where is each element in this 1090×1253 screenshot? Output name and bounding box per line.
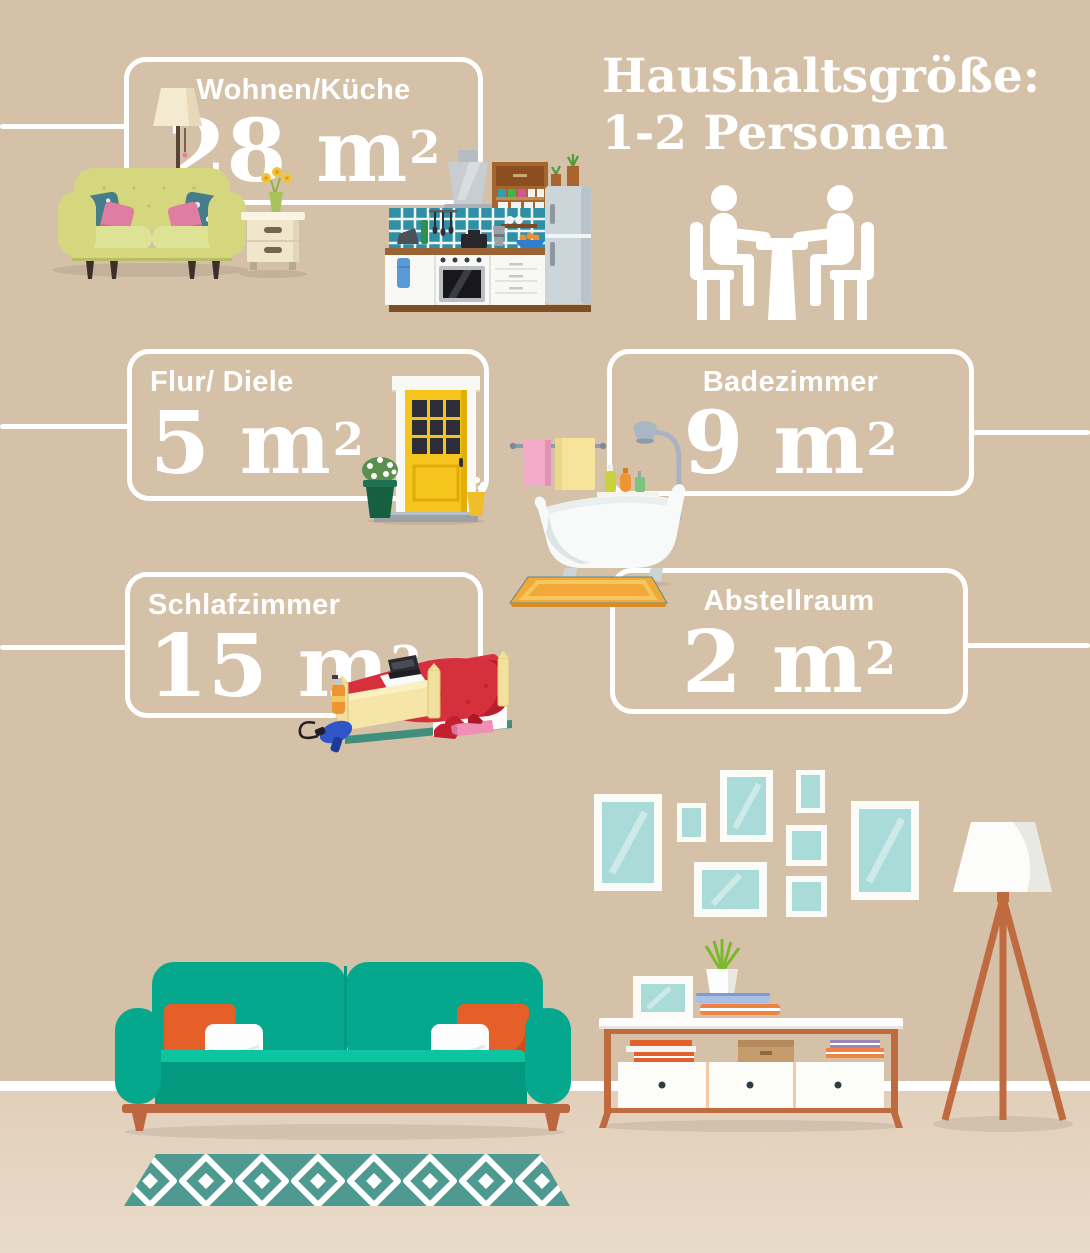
front-door-illustration <box>360 374 500 526</box>
table-icon <box>756 238 808 320</box>
potted-plant-icon <box>706 939 739 993</box>
kitchen-illustration <box>385 148 600 314</box>
sideboard-icon <box>599 1018 903 1128</box>
bathtub-icon <box>535 484 686 582</box>
base-cabinets-icon <box>385 248 545 305</box>
hair-dryer-icon <box>300 716 356 753</box>
shelf-books-icon <box>626 1040 884 1062</box>
fridge-icon <box>545 154 591 304</box>
picture-frames-gallery <box>585 758 930 923</box>
side-table-icon <box>241 167 305 270</box>
flower-pot-icon <box>362 457 398 518</box>
two-persons-at-table-icon <box>672 182 892 320</box>
connector-line-schlaf <box>0 645 128 650</box>
room-area: 2 m2 <box>615 619 963 707</box>
living-room-illustration <box>38 84 310 282</box>
infographic-canvas: Wohnen/Küche 28 m2 Flur/ Diele 5 m2 Bade… <box>0 0 1090 1253</box>
teal-sofa-icon <box>115 962 571 1131</box>
bathroom-illustration <box>505 388 710 610</box>
upper-cabinet-icon <box>492 162 548 214</box>
books-icon <box>696 993 780 1015</box>
bedroom-illustration <box>288 636 528 758</box>
range-hood-icon <box>444 150 492 212</box>
page-title: Haushaltsgröße: 1-2 Personen <box>602 48 1082 163</box>
tripod-floor-lamp <box>925 812 1090 1137</box>
toiletries-shelf-icon <box>597 465 659 497</box>
small-flower-pot-icon <box>467 477 486 516</box>
picture-frame-icon <box>594 770 919 917</box>
connector-line-flur <box>0 424 130 429</box>
bath-mat-icon <box>510 577 667 607</box>
yellow-sofa-icon <box>58 168 246 279</box>
connector-line-abstell <box>966 643 1090 648</box>
sideboard-illustration <box>590 938 920 1133</box>
photo-frame-icon <box>633 976 693 1020</box>
title-line-2: 1-2 Personen <box>602 105 1082 162</box>
patterned-rug <box>112 1146 582 1216</box>
tripod-floor-lamp-icon <box>945 822 1063 1120</box>
connector-line-bad <box>972 430 1090 435</box>
towel-rail-icon <box>510 438 606 490</box>
title-line-1: Haushaltsgröße: <box>602 48 1082 105</box>
teal-sofa-illustration <box>105 952 585 1144</box>
patterned-rug-icon <box>124 1154 570 1206</box>
